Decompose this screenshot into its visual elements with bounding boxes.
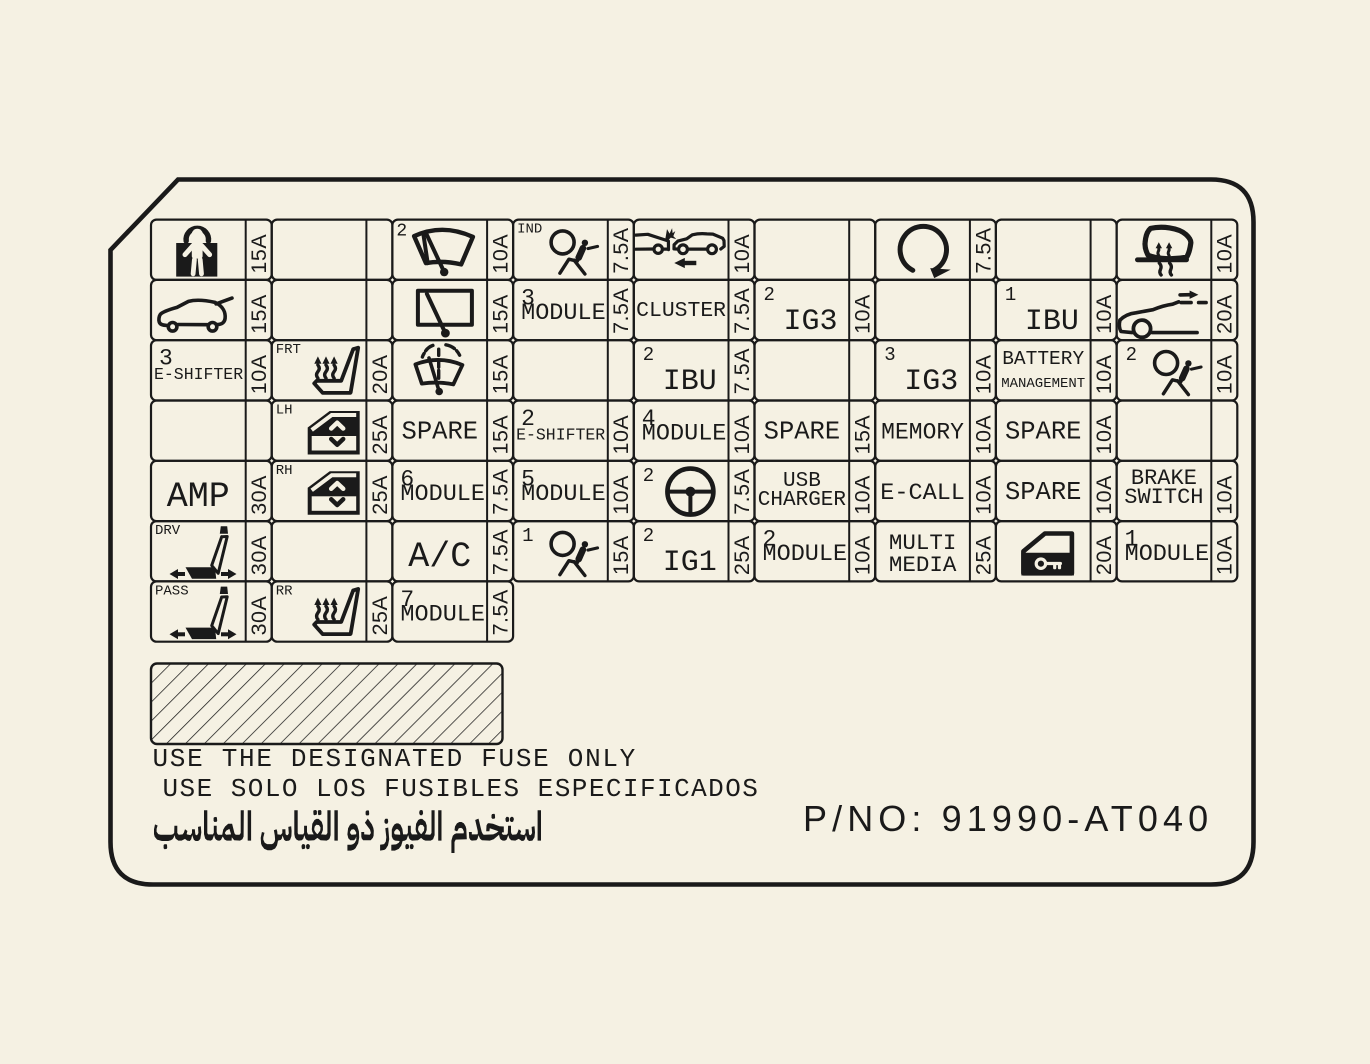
svg-text:1: 1 <box>1005 284 1016 306</box>
svg-text:15A: 15A <box>247 294 271 334</box>
svg-text:7.5A: 7.5A <box>730 348 754 394</box>
svg-text:10A: 10A <box>971 415 995 455</box>
svg-text:SPARE: SPARE <box>764 418 841 447</box>
svg-text:20A: 20A <box>1092 535 1116 575</box>
svg-text:10A: 10A <box>1092 475 1116 515</box>
svg-text:1: 1 <box>522 525 533 547</box>
svg-text:RR: RR <box>276 583 293 599</box>
svg-text:10A: 10A <box>1092 294 1116 334</box>
svg-text:2: 2 <box>396 222 407 242</box>
svg-text:10A: 10A <box>1213 234 1237 274</box>
svg-text:2: 2 <box>764 284 775 306</box>
svg-text:15A: 15A <box>489 354 513 394</box>
svg-text:2: 2 <box>643 344 654 366</box>
svg-text:P/NO: 91990-AT040: P/NO: 91990-AT040 <box>803 798 1213 839</box>
svg-text:MANAGEMENT: MANAGEMENT <box>1001 376 1085 392</box>
svg-text:10A: 10A <box>971 475 995 515</box>
svg-text:SPARE: SPARE <box>1005 418 1082 447</box>
svg-text:IG1: IG1 <box>663 546 717 580</box>
svg-text:IND: IND <box>517 222 542 238</box>
svg-text:AMP: AMP <box>167 477 230 517</box>
svg-text:10A: 10A <box>730 415 754 455</box>
svg-text:10A: 10A <box>1092 415 1116 455</box>
svg-text:CLUSTER: CLUSTER <box>636 299 726 323</box>
svg-text:10A: 10A <box>1092 354 1116 394</box>
svg-text:RH: RH <box>276 463 293 479</box>
svg-text:7.5A: 7.5A <box>489 589 513 635</box>
svg-text:MEMORY: MEMORY <box>881 420 964 446</box>
svg-text:7.5A: 7.5A <box>609 227 633 273</box>
svg-text:15A: 15A <box>247 234 271 274</box>
svg-text:SPARE: SPARE <box>1005 478 1082 507</box>
svg-text:10A: 10A <box>851 294 875 334</box>
svg-text:15A: 15A <box>851 415 875 455</box>
svg-text:E-SHIFTER: E-SHIFTER <box>154 365 243 384</box>
svg-text:LH: LH <box>276 403 293 419</box>
svg-text:PASS: PASS <box>155 583 189 599</box>
svg-text:2: 2 <box>1126 344 1137 366</box>
svg-text:10A: 10A <box>609 475 633 515</box>
svg-text:7.5A: 7.5A <box>489 468 513 514</box>
svg-text:25A: 25A <box>730 535 754 575</box>
svg-text:10A: 10A <box>851 535 875 575</box>
svg-text:MODULE: MODULE <box>400 601 485 628</box>
svg-text:10A: 10A <box>971 354 995 394</box>
svg-text:7.5A: 7.5A <box>730 288 754 334</box>
svg-text:SWITCH: SWITCH <box>1124 485 1203 510</box>
svg-text:FRT: FRT <box>276 342 301 358</box>
svg-text:15A: 15A <box>609 535 633 575</box>
svg-text:10A: 10A <box>730 234 754 274</box>
svg-text:USE THE DESIGNATED FUSE ONLY: USE THE DESIGNATED FUSE ONLY <box>153 744 637 774</box>
svg-text:10A: 10A <box>489 234 513 274</box>
svg-text:15A: 15A <box>489 415 513 455</box>
svg-text:10A: 10A <box>247 354 271 394</box>
svg-text:15A: 15A <box>489 294 513 334</box>
svg-text:20A: 20A <box>368 354 392 394</box>
svg-text:MEDIA: MEDIA <box>889 552 957 578</box>
svg-text:IBU: IBU <box>663 365 717 399</box>
svg-text:MODULE: MODULE <box>521 300 606 327</box>
svg-text:CHARGER: CHARGER <box>758 489 847 512</box>
svg-text:BATTERY: BATTERY <box>1002 348 1084 370</box>
svg-text:30A: 30A <box>247 475 271 515</box>
svg-text:MODULE: MODULE <box>642 421 727 448</box>
svg-text:DRV: DRV <box>155 523 181 539</box>
svg-text:25A: 25A <box>368 475 392 515</box>
svg-text:USE SOLO LOS FUSIBLES ESPECIFI: USE SOLO LOS FUSIBLES ESPECIFICADOS <box>163 774 760 804</box>
svg-text:IG3: IG3 <box>783 305 837 339</box>
svg-text:25A: 25A <box>368 415 392 455</box>
svg-text:7.5A: 7.5A <box>609 288 633 334</box>
svg-text:10A: 10A <box>851 475 875 515</box>
svg-text:30A: 30A <box>247 535 271 575</box>
svg-text:MODULE: MODULE <box>521 481 606 508</box>
svg-text:E-SHIFTER: E-SHIFTER <box>516 426 605 445</box>
svg-text:10A: 10A <box>1213 535 1237 575</box>
svg-text:7.5A: 7.5A <box>971 227 995 273</box>
svg-text:2: 2 <box>643 465 654 487</box>
svg-text:10A: 10A <box>1213 354 1237 394</box>
svg-text:SPARE: SPARE <box>402 418 479 447</box>
svg-text:20A: 20A <box>1213 294 1237 334</box>
svg-text:10A: 10A <box>609 415 633 455</box>
svg-text:7.5A: 7.5A <box>730 468 754 514</box>
svg-text:7.5A: 7.5A <box>489 529 513 575</box>
svg-text:MODULE: MODULE <box>1125 541 1210 568</box>
svg-text:3: 3 <box>884 344 895 366</box>
svg-text:MODULE: MODULE <box>400 481 485 508</box>
svg-text:MODULE: MODULE <box>763 541 848 568</box>
svg-text:2: 2 <box>643 525 654 547</box>
svg-text:10A: 10A <box>1213 475 1237 515</box>
svg-text:IBU: IBU <box>1025 305 1079 339</box>
svg-text:E-CALL: E-CALL <box>880 480 965 507</box>
svg-text:25A: 25A <box>368 595 392 635</box>
svg-text:30A: 30A <box>247 595 271 635</box>
svg-text:25A: 25A <box>971 535 995 575</box>
svg-text:IG3: IG3 <box>904 365 958 399</box>
svg-text:A/C: A/C <box>408 537 471 577</box>
